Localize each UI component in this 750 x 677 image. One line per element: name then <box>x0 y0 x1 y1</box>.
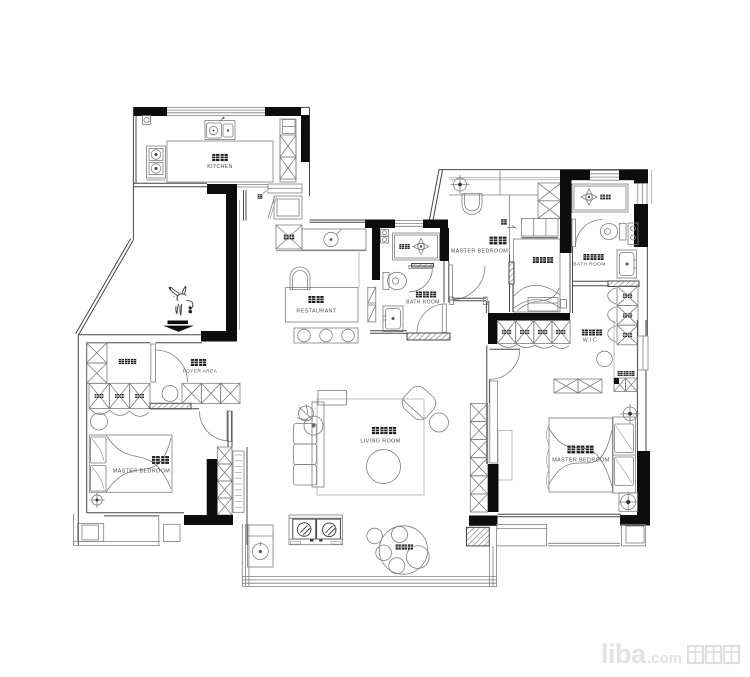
svg-text:MASTER BEDROOM: MASTER BEDROOM <box>552 458 610 464</box>
svg-text:KITCHEN: KITCHEN <box>207 164 233 170</box>
svg-text:MASTER BEDROOM: MASTER BEDROOM <box>113 469 171 475</box>
svg-text:.com: .com <box>647 650 682 667</box>
svg-text:liba: liba <box>601 639 647 669</box>
svg-text:RESTAURANT: RESTAURANT <box>296 309 336 315</box>
svg-text:FOYER AREA: FOYER AREA <box>183 369 218 375</box>
svg-text:MASTER BEDROOM: MASTER BEDROOM <box>451 249 509 255</box>
svg-text:LIVING ROOM: LIVING ROOM <box>360 439 400 445</box>
svg-text:BATH ROOM: BATH ROOM <box>573 262 605 268</box>
svg-text:BATH ROOM: BATH ROOM <box>406 300 440 306</box>
svg-text:W.I.C: W.I.C <box>583 338 597 344</box>
